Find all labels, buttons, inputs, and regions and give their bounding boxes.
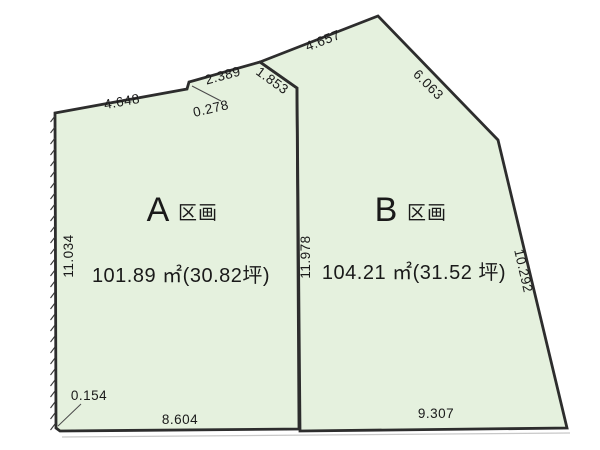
survey-drawing-canvas: 4.648 0.278 2.389 1.853 4.657 6.063 11.0… <box>0 0 600 450</box>
scan-shadow-line <box>62 433 570 437</box>
dim-a-south: 8.604 <box>162 412 198 427</box>
dim-divider: 11.978 <box>298 235 313 278</box>
parcel-a-suffix: 区画 <box>178 203 218 224</box>
parcel-a-area: 101.89 ㎡(30.82坪) <box>92 263 270 287</box>
land-plot-diagram: 4.648 0.278 2.389 1.853 4.657 6.063 11.0… <box>0 0 600 450</box>
parcel-b-letter: B <box>375 191 398 229</box>
dim-a-west: 11.034 <box>61 234 76 277</box>
dim-b-south: 9.307 <box>418 406 454 421</box>
parcel-b-area: 104.21 ㎡(31.52 坪) <box>322 260 506 284</box>
dim-a-southwest-corner: 0.154 <box>71 388 107 403</box>
parcel-b-suffix: 区画 <box>407 203 447 224</box>
parcel-a-letter: A <box>147 191 170 229</box>
parcel-a-shape <box>55 62 299 431</box>
